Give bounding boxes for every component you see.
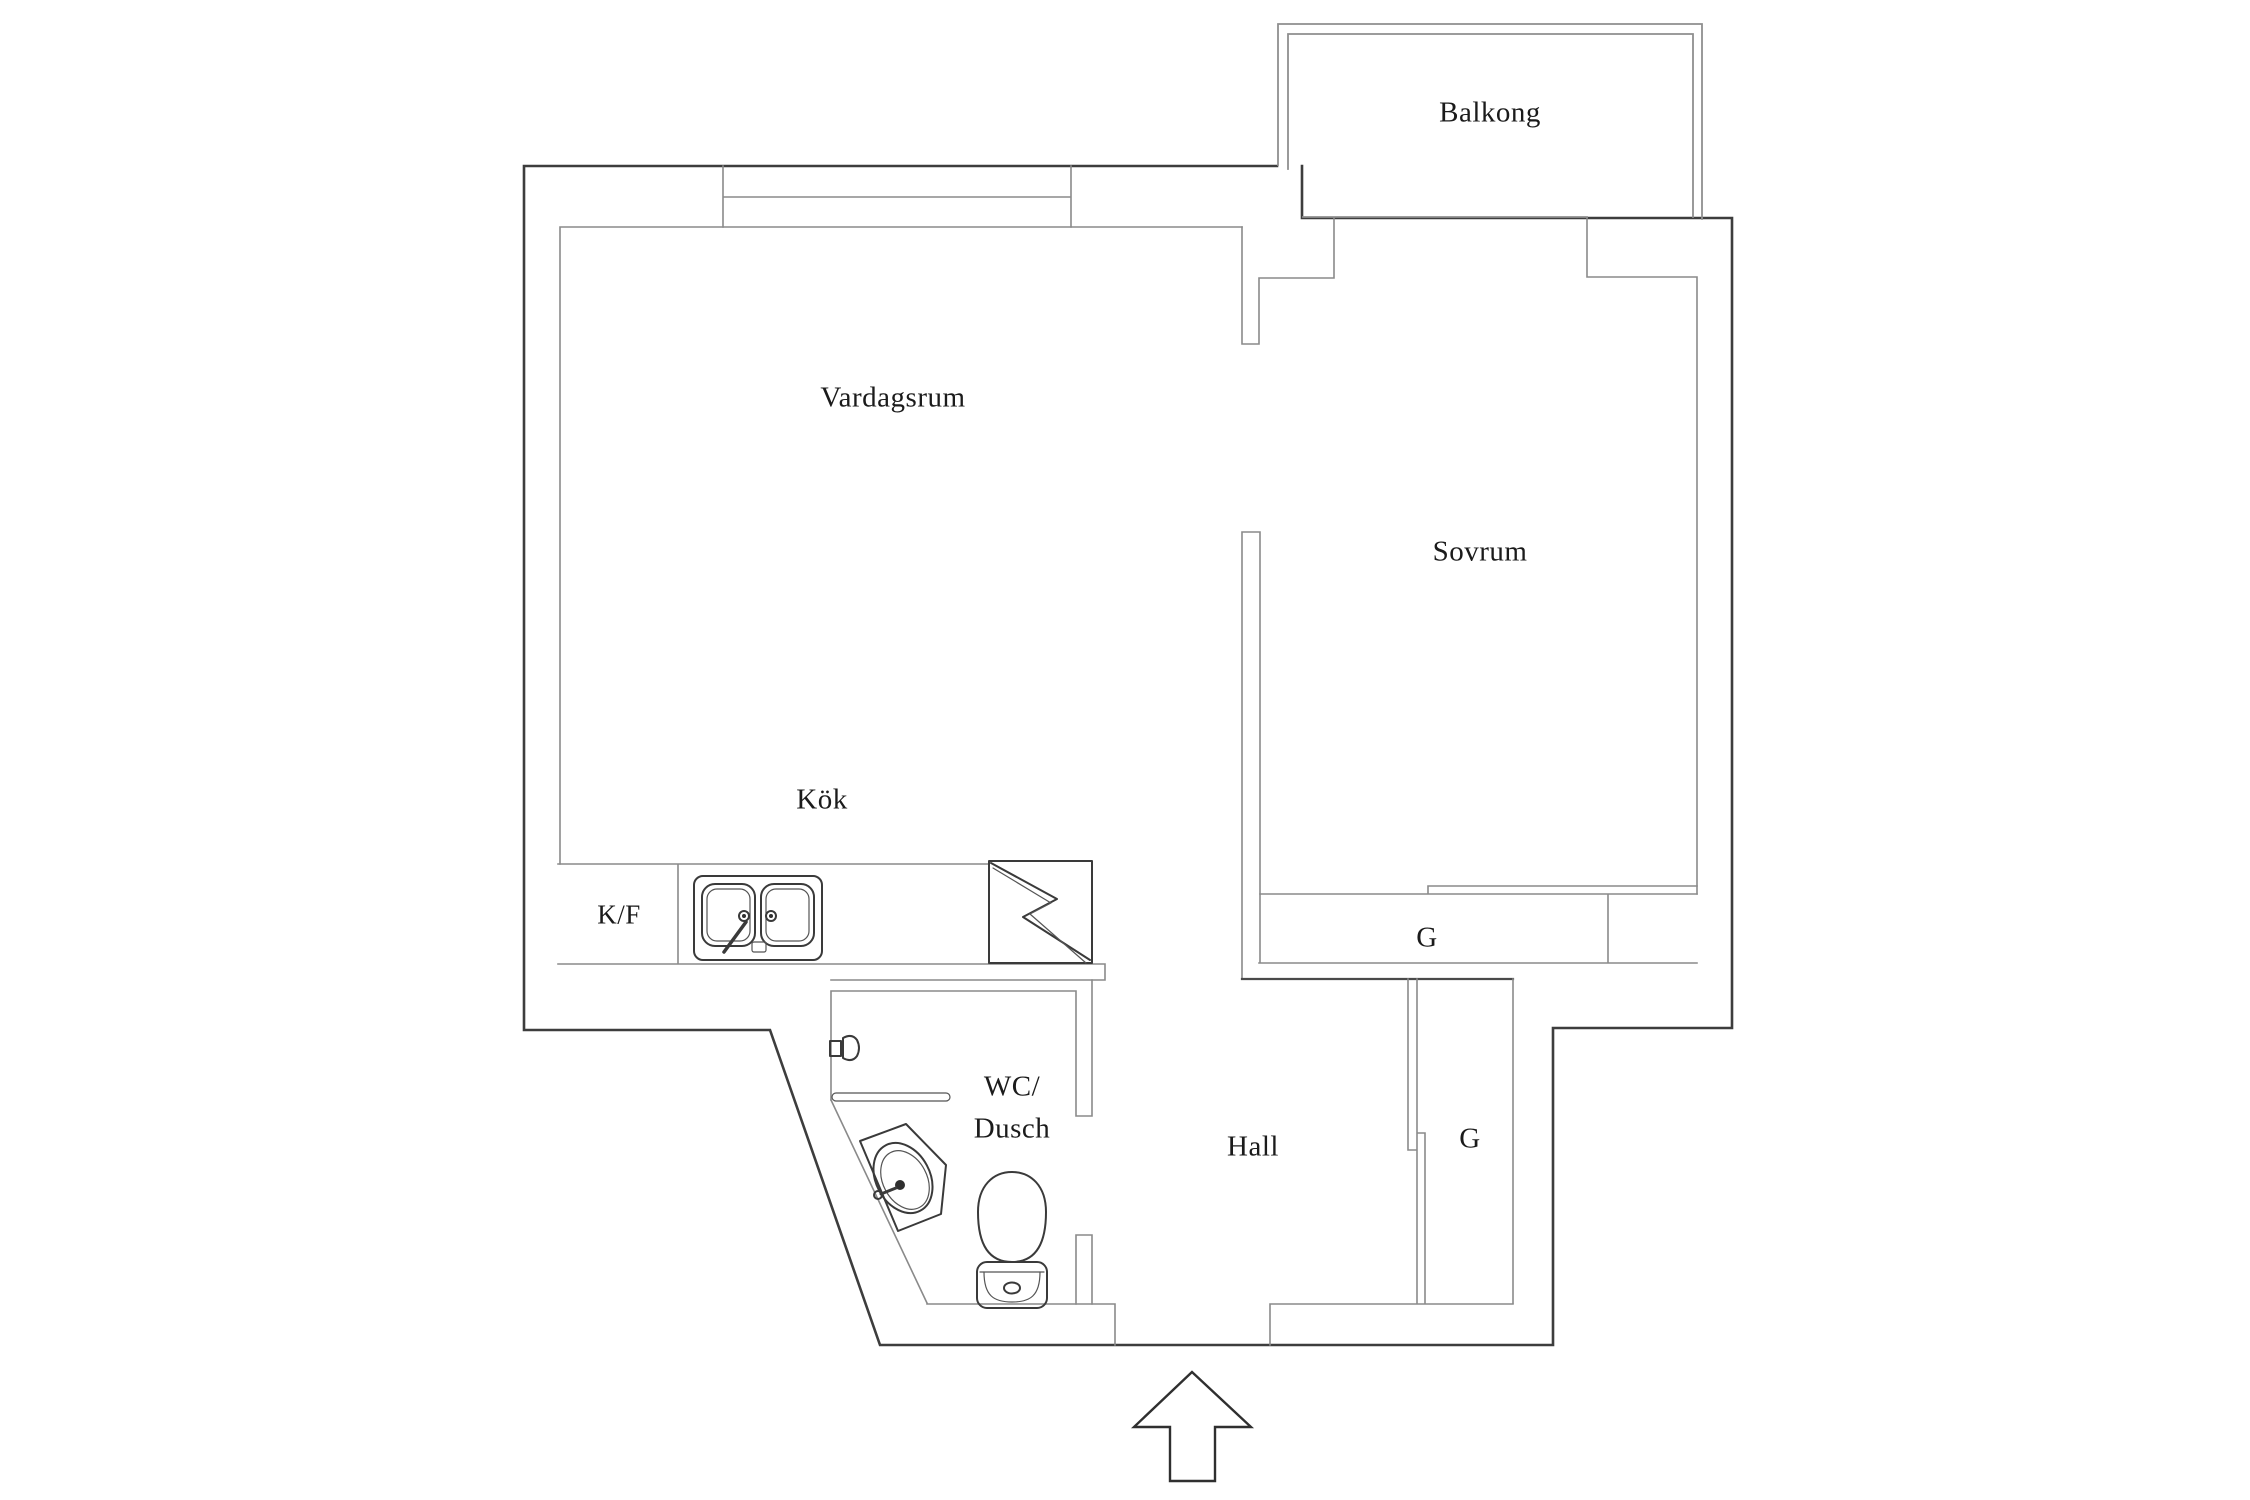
entry-arrow-icon [1134, 1372, 1251, 1481]
kitchen-sink-icon [694, 876, 822, 960]
wc-walls [831, 980, 1092, 1304]
floor-plan-drawing [0, 0, 2250, 1500]
bedroom-top-right-wall [1587, 218, 1697, 894]
floor-plan: Balkong Vardagsrum Sovrum Kök K/F G WC/ … [0, 0, 2250, 1500]
bedroom-wardrobe-walls [1259, 886, 1697, 963]
outer-wall-path [524, 166, 1732, 1345]
living-room-inner-wall [560, 227, 1242, 864]
towel-bar-icon [832, 1093, 950, 1101]
toilet-icon [977, 1172, 1047, 1308]
room-label-wardrobe-hall: G [1459, 1123, 1480, 1156]
living-room-window [723, 166, 1071, 227]
room-label-wardrobe-bedroom: G [1416, 922, 1437, 955]
room-label-fridge-freezer: K/F [597, 900, 641, 931]
room-label-living-room: Vardagsrum [820, 382, 965, 415]
room-label-balcony: Balkong [1439, 97, 1541, 130]
room-label-bedroom: Sovrum [1433, 536, 1528, 569]
hall-wardrobe-partition [1408, 979, 1425, 1303]
room-label-hall: Hall [1227, 1131, 1279, 1164]
bedroom-wall-lower [1242, 532, 1260, 979]
stove-icon [989, 861, 1092, 963]
room-label-wc: WC/ [984, 1071, 1040, 1104]
room-label-dusch: Dusch [974, 1113, 1051, 1146]
hall-bottom-inner-wall [927, 1304, 1513, 1345]
shower-mixer-icon [830, 1036, 859, 1060]
room-label-kitchen: Kök [796, 784, 847, 817]
bedroom-wall-upper-stub [1242, 218, 1334, 344]
washbasin-icon [860, 1124, 946, 1231]
